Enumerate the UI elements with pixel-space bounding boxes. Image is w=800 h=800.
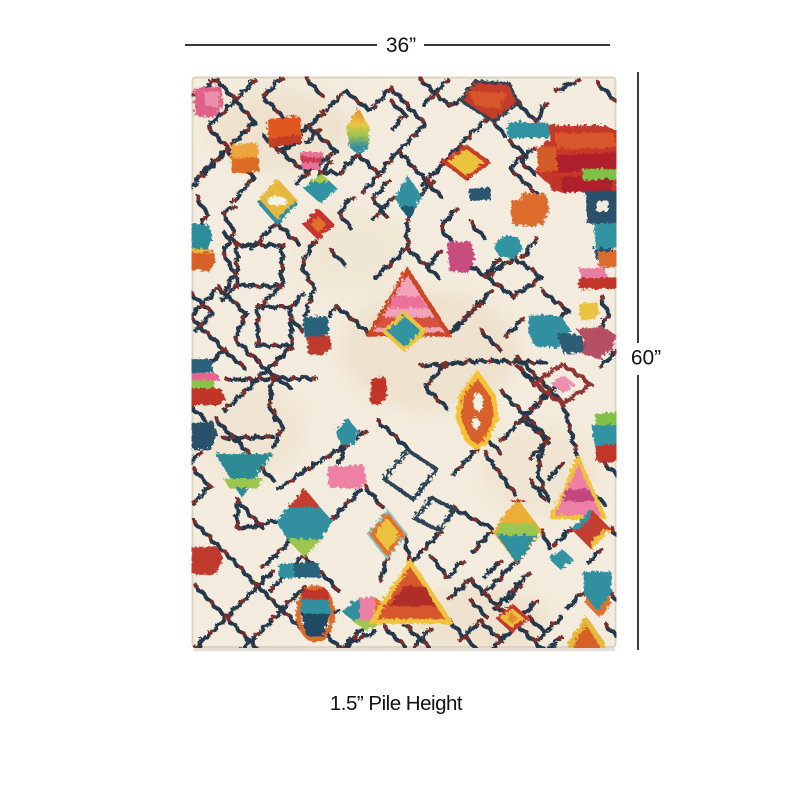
svg-text:36”: 36”	[386, 34, 416, 57]
svg-text:1.5” Pile Height: 1.5” Pile Height	[330, 692, 463, 715]
svg-text:60”: 60”	[631, 347, 661, 370]
